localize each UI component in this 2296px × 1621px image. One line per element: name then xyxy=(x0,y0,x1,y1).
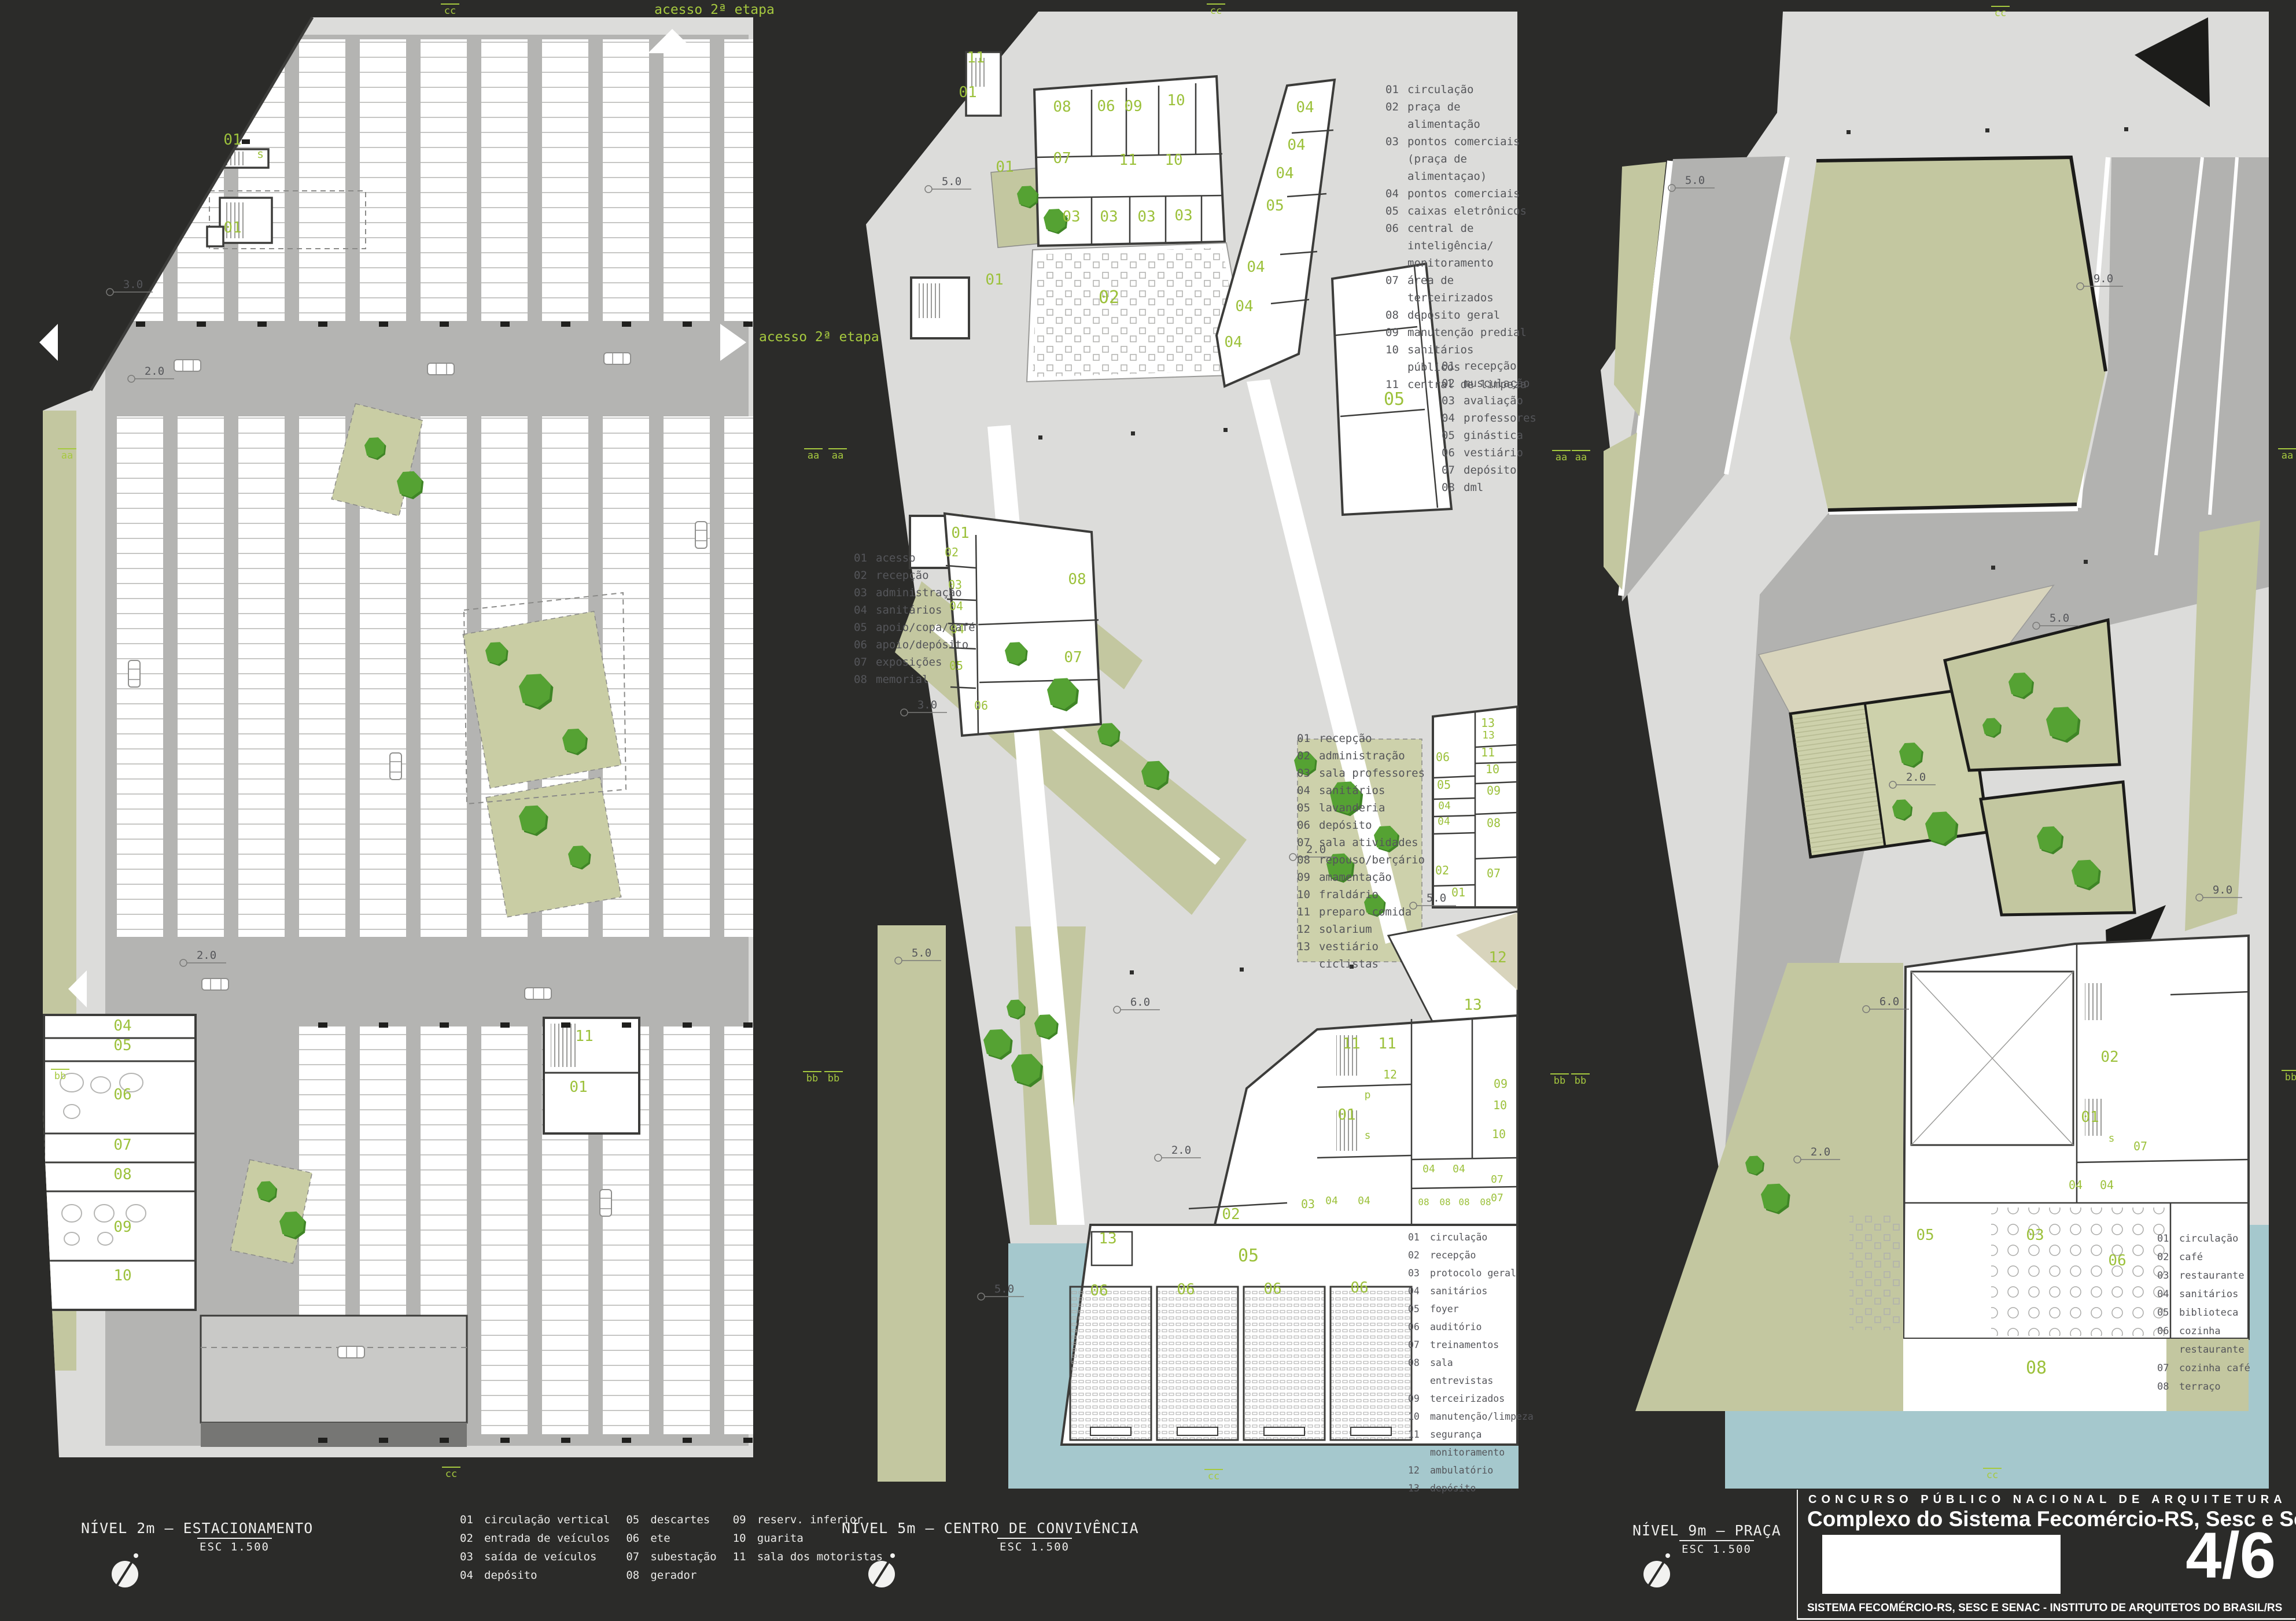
legend-row: 05caixas eletrônicos xyxy=(1385,202,1530,220)
room-label: 01 xyxy=(223,219,241,237)
caption-convivencia: NÍVEL 5m – CENTRO DE CONVIVÊNCIA ESC 1.5… xyxy=(842,1520,1072,1553)
room-label: 05 xyxy=(1266,197,1284,215)
legend-row: 12ambulatório xyxy=(1408,1461,1518,1479)
room-label: 04 xyxy=(1358,1195,1370,1207)
legend-gym: 01recepção02musculação03avaliação04profe… xyxy=(1442,357,1557,496)
section-marker-aa: aa xyxy=(58,448,76,461)
room-label: 06 xyxy=(1350,1279,1368,1297)
legend-row: 01circulação xyxy=(2157,1229,2267,1248)
legend-row: 03administração xyxy=(854,584,993,601)
legend-row: 08repouso/berçário xyxy=(1297,851,1442,869)
room-label: s xyxy=(2109,1132,2115,1144)
scale-label: ESC 1.500 xyxy=(197,1538,272,1553)
legend-row: 02administração xyxy=(1297,747,1442,765)
room-label: 04 xyxy=(1422,1163,1435,1175)
room-label: 12 xyxy=(1488,949,1506,966)
legend-row: 04sanitários xyxy=(2157,1285,2267,1304)
legend-row: 13vestiário ciclistas xyxy=(1297,938,1442,973)
room-label: 04 xyxy=(1224,334,1242,351)
legend-row: 12solarium xyxy=(1297,921,1442,938)
room-label: 09 xyxy=(1487,784,1501,797)
section-marker-bb: bb xyxy=(1571,1073,1590,1087)
legend-row: 09amamentação xyxy=(1297,869,1442,886)
room-label: s xyxy=(1365,1129,1371,1142)
room-label: 08 xyxy=(1068,571,1086,588)
legend-row: 08sala entrevistas xyxy=(1408,1354,1518,1390)
room-label: 04 xyxy=(1276,165,1293,182)
room-label: 09 xyxy=(113,1218,131,1236)
room-label: 03 xyxy=(1301,1197,1315,1211)
room-label: 05 xyxy=(1916,1227,1934,1244)
legend-senac: 01circulação02recepção03protocolo geral0… xyxy=(1408,1228,1518,1497)
legend-row: 05ginástica xyxy=(1442,427,1557,444)
legend-row: 07cozinha café xyxy=(2157,1359,2267,1378)
legend-row: 01circulação vertical xyxy=(460,1511,610,1529)
legend-row: 04sanitários xyxy=(1408,1282,1518,1300)
section-marker-cc: cc xyxy=(1983,1468,2002,1481)
svg-text:5.0: 5.0 xyxy=(942,175,961,188)
legend-memorial: 01acesso02recepção03administração04sanit… xyxy=(854,549,993,688)
room-label: 13 xyxy=(1099,1230,1116,1247)
sheet-number: 4/6 xyxy=(2186,1523,2276,1588)
legend-row: 02praça de alimentação xyxy=(1385,98,1530,133)
svg-text:3.0: 3.0 xyxy=(917,699,937,711)
section-marker-bb: bb xyxy=(1550,1073,1569,1087)
room-label: 10 xyxy=(1167,92,1185,109)
legend-row: 02café xyxy=(2157,1248,2267,1266)
room-label: 01 xyxy=(959,84,976,101)
section-marker-aa: aa xyxy=(804,448,823,461)
room-label: 11 xyxy=(1481,745,1495,759)
svg-text:9.0: 9.0 xyxy=(2213,884,2232,896)
room-label: 03 xyxy=(2026,1227,2044,1244)
room-label: 11 xyxy=(967,49,985,67)
legend-creche: 01recepção02administração03sala professo… xyxy=(1297,730,1442,973)
legend-row: 08depósito geral xyxy=(1385,307,1530,324)
section-marker-cc: cc xyxy=(442,1467,460,1480)
room-label: 01 xyxy=(996,158,1014,176)
legend-row: 10manutenção/limpeza xyxy=(1408,1408,1518,1426)
legend-row: 06central de inteligência/ monitoramento xyxy=(1385,220,1530,272)
legend-row: 03restaurante xyxy=(2157,1266,2267,1285)
room-label: 13 xyxy=(1482,729,1495,741)
title-block-blank-box xyxy=(1822,1535,2061,1594)
room-label: 06 xyxy=(1097,98,1115,115)
room-label: 11 xyxy=(1342,1035,1360,1053)
level-marker: 3.0 xyxy=(106,278,153,296)
section-marker-cc: cc xyxy=(1207,3,1225,17)
section-marker-cc: cc xyxy=(1991,6,2010,19)
legend-row: 13depósito xyxy=(1408,1479,1518,1497)
room-label: 08 xyxy=(113,1166,131,1183)
room-label: 01 xyxy=(1337,1106,1355,1124)
panel-title: NÍVEL 9m – PRAÇA xyxy=(1632,1522,1754,1539)
room-label: 04 xyxy=(2069,1178,2083,1192)
legend-row: 01recepção xyxy=(1297,730,1442,747)
access-label-top: acesso 2ª etapa xyxy=(636,2,793,17)
legend-row: 01circulação xyxy=(1385,81,1530,98)
section-marker-bb: bb xyxy=(803,1071,821,1084)
room-label: 03 xyxy=(1062,208,1080,226)
legend-row: 05lavanderia xyxy=(1297,799,1442,817)
caption-estacionamento: NÍVEL 2m – ESTACIONAMENTO ESC 1.500 xyxy=(81,1520,272,1553)
legend-row: 11preparo comida xyxy=(1297,903,1442,921)
svg-text:2.0: 2.0 xyxy=(197,949,216,962)
legend-row: 04depósito xyxy=(460,1566,610,1585)
svg-text:5.0: 5.0 xyxy=(1685,174,1705,187)
room-label: 01 xyxy=(951,525,969,542)
legend-row: 07subestação xyxy=(626,1548,716,1566)
room-label: 13 xyxy=(1464,996,1481,1014)
room-label: 03 xyxy=(1174,207,1192,224)
section-marker-cc: cc xyxy=(441,3,459,17)
legend-row: 09manutenção predial xyxy=(1385,324,1530,341)
room-label: 02 xyxy=(1099,287,1119,308)
room-label: 07 xyxy=(1491,1192,1503,1204)
legend-row: 10fraldário xyxy=(1297,886,1442,903)
legend-row: 07área de terceirizados xyxy=(1385,272,1530,307)
room-label: 04 xyxy=(1247,259,1265,276)
legend-row: 07treinamentos xyxy=(1408,1336,1518,1354)
scale-label: ESC 1.500 xyxy=(1679,1540,1754,1556)
svg-text:2.0: 2.0 xyxy=(1171,1144,1191,1157)
legend-row: 03saída de veículos xyxy=(460,1548,610,1566)
room-label: 01 xyxy=(1451,885,1465,899)
legend-row: 03sala professores xyxy=(1297,765,1442,782)
room-label: 08 xyxy=(1480,1197,1491,1208)
north-compass-icon xyxy=(108,1550,143,1592)
room-label: 04 xyxy=(1296,99,1314,116)
room-label: 08 xyxy=(2026,1358,2047,1378)
section-marker-aa: aa xyxy=(828,448,847,461)
legend-row: 08gerador xyxy=(626,1566,716,1585)
legend-row: 08memorial xyxy=(854,671,993,688)
section-marker-bb: bb xyxy=(2282,1070,2296,1083)
room-label: 10 xyxy=(1164,152,1182,169)
svg-text:9.0: 9.0 xyxy=(2094,272,2113,285)
access-label-right: acesso 2ª etapa xyxy=(759,330,879,345)
room-label: 03 xyxy=(1137,208,1155,226)
room-label: 08 xyxy=(1418,1197,1429,1208)
legend-row: 06cozinha restaurante xyxy=(2157,1322,2267,1359)
svg-text:5.0: 5.0 xyxy=(2050,612,2069,625)
svg-text:5.0: 5.0 xyxy=(912,947,931,959)
legend-food-court: 01circulação02praça de alimentação03pont… xyxy=(1385,81,1530,393)
legend-cafe: 01circulação02café03restaurante04sanitár… xyxy=(2157,1229,2267,1396)
legend-row: 04sanitários xyxy=(1297,782,1442,799)
section-marker-aa: aa xyxy=(1552,450,1571,463)
legend-row: 03pontos comerciais (praça de alimentaça… xyxy=(1385,133,1530,185)
legend-row: 04professores xyxy=(1442,409,1557,427)
svg-text:3.0: 3.0 xyxy=(123,278,143,291)
legend-row: 06depósito xyxy=(1297,817,1442,834)
room-label: 06 xyxy=(1177,1281,1195,1298)
room-label: 09 xyxy=(1124,98,1142,115)
legend-row: 07exposições xyxy=(854,653,993,671)
room-label: 01 xyxy=(223,131,241,149)
room-label: 06 xyxy=(1263,1280,1281,1298)
room-label: 11 xyxy=(575,1028,593,1045)
svg-text:6.0: 6.0 xyxy=(1879,995,1899,1008)
room-label: 05 xyxy=(113,1037,131,1054)
room-label: 08 xyxy=(1053,98,1071,116)
room-label: 06 xyxy=(1090,1282,1108,1299)
legend-parking: 01circulação vertical02entrada de veícul… xyxy=(460,1511,883,1585)
competition-name: CONCURSO PÚBLICO NACIONAL DE ARQUITETURA xyxy=(1808,1493,2287,1506)
room-label: 04 xyxy=(1287,136,1305,154)
room-label: 07 xyxy=(1487,866,1501,880)
room-label: 06 xyxy=(113,1086,131,1103)
north-compass-icon xyxy=(864,1550,900,1592)
room-label: 11 xyxy=(1378,1035,1396,1053)
room-label: 10 xyxy=(113,1267,131,1284)
legend-row: 04pontos comerciais xyxy=(1385,185,1530,202)
room-label: 07 xyxy=(1064,649,1082,666)
legend-row: 11segurança monitoramento xyxy=(1408,1426,1518,1461)
panel-title: NÍVEL 2m – ESTACIONAMENTO xyxy=(81,1520,272,1537)
svg-text:6.0: 6.0 xyxy=(1130,996,1150,1009)
room-label: 07 xyxy=(2133,1139,2147,1153)
svg-text:5.0: 5.0 xyxy=(994,1283,1014,1295)
room-label: 02 xyxy=(2100,1048,2118,1066)
room-label: 12 xyxy=(1383,1068,1397,1081)
legend-row: 03avaliação xyxy=(1442,392,1557,409)
room-label: p xyxy=(1365,1089,1371,1101)
room-label: 01 xyxy=(985,271,1003,289)
section-marker-bb: bb xyxy=(824,1071,843,1084)
legend-row: 08dml xyxy=(1442,479,1557,496)
room-label: 04 xyxy=(1453,1163,1465,1175)
panel-title: NÍVEL 5m – CENTRO DE CONVIVÊNCIA xyxy=(842,1520,1072,1537)
room-label: 04 xyxy=(113,1017,131,1035)
room-label: 07 xyxy=(113,1136,131,1154)
room-label: 07 xyxy=(1053,150,1071,167)
svg-text:2.0: 2.0 xyxy=(1906,771,1926,784)
section-marker-cc: cc xyxy=(1204,1469,1223,1482)
legend-row: 06apoio/depósito xyxy=(854,636,993,653)
room-label: 10 xyxy=(1492,1127,1506,1141)
legend-row: 06vestiário xyxy=(1442,444,1557,461)
legend-row: 09terceirizados xyxy=(1408,1390,1518,1408)
room-label: 04 xyxy=(2100,1178,2114,1192)
legend-row: 05descartes xyxy=(626,1511,716,1529)
legend-row: 06ete xyxy=(626,1529,716,1548)
room-label: 07 xyxy=(1491,1173,1503,1186)
title-block: CONCURSO PÚBLICO NACIONAL DE ARQUITETURA… xyxy=(1797,1490,2295,1620)
section-marker-bb: bb xyxy=(51,1069,69,1082)
room-label: s xyxy=(257,147,264,161)
room-label: 04 xyxy=(1325,1195,1338,1207)
room-label: 05 xyxy=(1238,1246,1259,1266)
legend-row: 05biblioteca xyxy=(2157,1304,2267,1322)
legend-row: 04sanitários xyxy=(854,601,993,619)
legend-row: 07sala atividades xyxy=(1297,834,1442,851)
title-block-footer: SISTEMA FECOMÉRCIO-RS, SESC E SENAC - IN… xyxy=(1807,1602,2282,1615)
legend-row: 01acesso xyxy=(854,549,993,567)
room-label: 10 xyxy=(1486,762,1499,776)
room-label: 11 xyxy=(1119,152,1137,169)
room-label: 03 xyxy=(1100,208,1118,226)
competition-board: 01s01040506070809101101 3.02.02.0 xyxy=(0,0,2296,1621)
room-label: 06 xyxy=(974,699,988,712)
room-label: 08 xyxy=(1487,816,1501,830)
room-label: 02 xyxy=(1222,1206,1240,1223)
legend-row: 01recepção xyxy=(1442,357,1557,375)
legend-row: 02entrada de veículos xyxy=(460,1529,610,1548)
legend-row: 08terraço xyxy=(2157,1378,2267,1396)
room-label: 13 xyxy=(1481,716,1495,730)
room-label: 01 xyxy=(569,1079,587,1096)
scale-label: ESC 1.500 xyxy=(997,1538,1072,1553)
room-label: 08 xyxy=(1458,1197,1469,1208)
legend-row: 06auditório xyxy=(1408,1318,1518,1336)
room-label: 01 xyxy=(2081,1109,2099,1126)
legend-row: 03protocolo geral xyxy=(1408,1264,1518,1282)
section-marker-aa: aa xyxy=(1572,450,1590,463)
legend-row: 02recepção xyxy=(1408,1246,1518,1264)
legend-row: 05apoio/copa/café xyxy=(854,619,993,636)
north-compass-icon xyxy=(1639,1550,1675,1592)
legend-row: 01circulação xyxy=(1408,1228,1518,1246)
legend-row: 07depósito xyxy=(1442,461,1557,479)
legend-row: 02musculação xyxy=(1442,375,1557,392)
room-label: 06 xyxy=(2108,1252,2126,1269)
svg-text:2.0: 2.0 xyxy=(1811,1146,1830,1158)
plan-estacionamento: 01s01040506070809101101 3.02.02.0 xyxy=(36,12,776,1492)
room-label: 09 xyxy=(1494,1077,1508,1091)
legend-row: 02recepção xyxy=(854,567,993,584)
svg-text:2.0: 2.0 xyxy=(145,365,164,378)
room-label: 04 xyxy=(1235,298,1253,315)
room-label: 10 xyxy=(1493,1098,1507,1112)
section-marker-aa: aa xyxy=(2278,448,2296,461)
room-label: 08 xyxy=(1439,1197,1450,1208)
legend-row: 05foyer xyxy=(1408,1300,1518,1318)
